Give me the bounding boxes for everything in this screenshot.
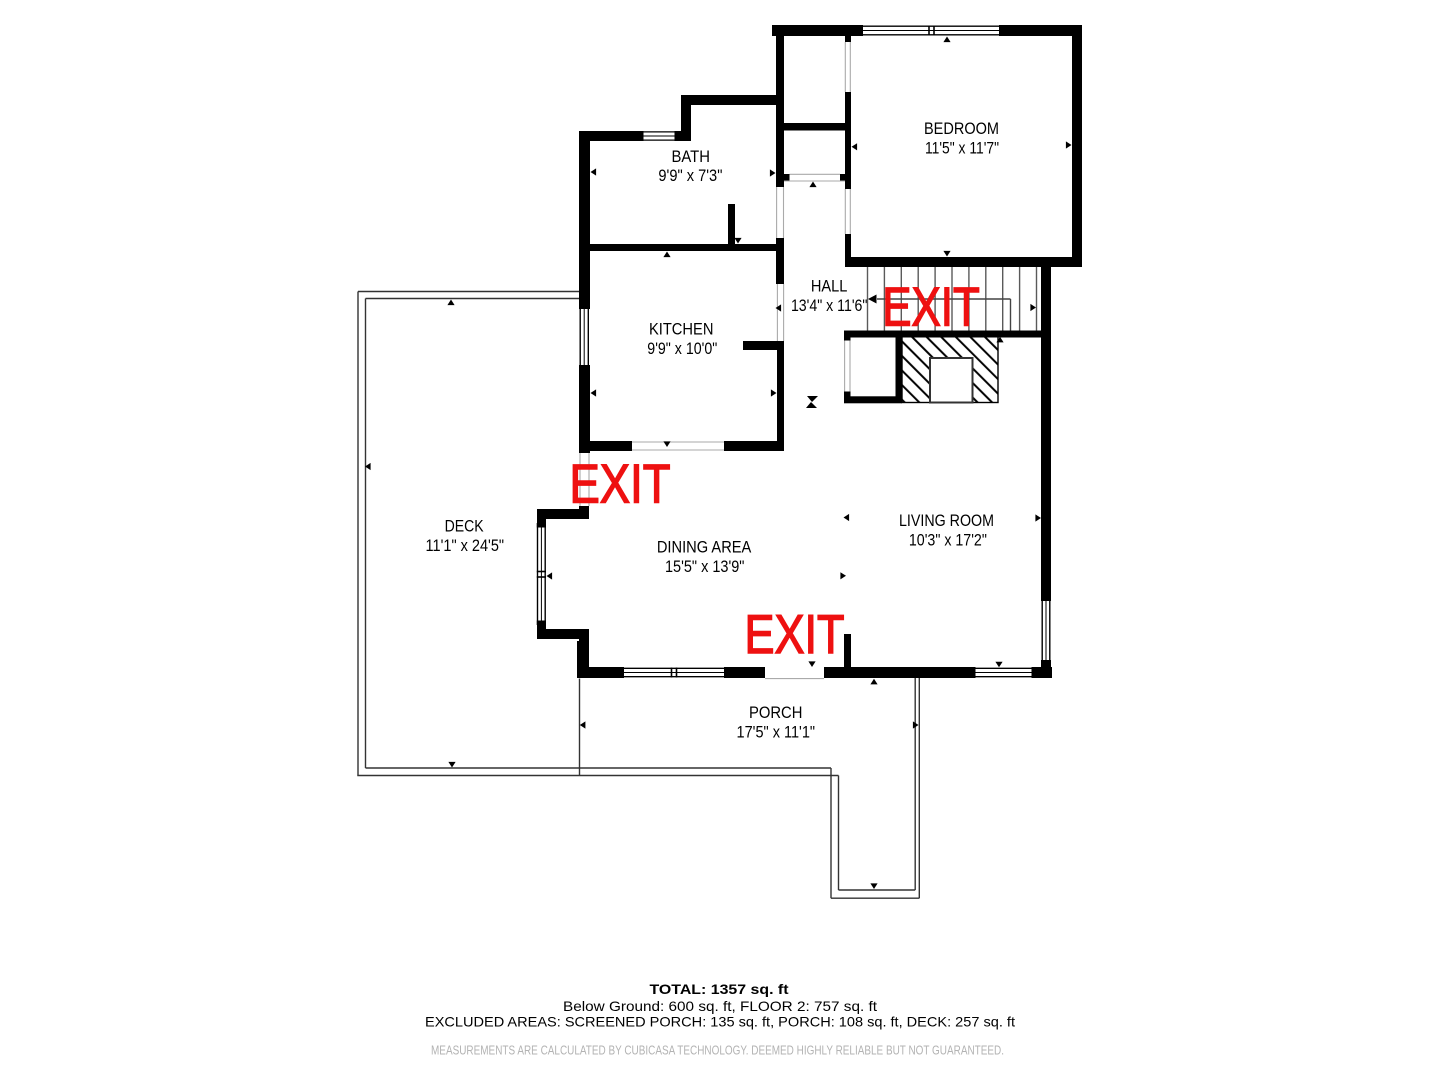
svg-text:13'4" x 11'6": 13'4" x 11'6" [791, 296, 868, 315]
svg-text:KITCHEN: KITCHEN [649, 319, 714, 338]
svg-text:MEASUREMENTS ARE CALCULATED BY: MEASUREMENTS ARE CALCULATED BY CUBICASA … [431, 1044, 1004, 1058]
svg-text:15'5" x 13'9": 15'5" x 13'9" [665, 557, 745, 576]
svg-text:9'9" x 10'0": 9'9" x 10'0" [647, 339, 717, 358]
svg-text:BEDROOM: BEDROOM [924, 119, 999, 138]
svg-text:EXCLUDED AREAS: SCREENED PORCH: EXCLUDED AREAS: SCREENED PORCH: 135 sq. … [425, 1015, 1015, 1030]
svg-text:17'5" x 11'1": 17'5" x 11'1" [737, 723, 816, 742]
svg-text:11'5" x 11'7": 11'5" x 11'7" [925, 139, 999, 158]
svg-text:EXIT: EXIT [745, 603, 845, 665]
svg-text:EXIT: EXIT [570, 453, 671, 515]
svg-text:11'1" x 24'5": 11'1" x 24'5" [426, 536, 505, 555]
svg-text:TOTAL: 1357 sq. ft: TOTAL: 1357 sq. ft [650, 982, 789, 997]
svg-text:Below Ground: 600 sq. ft, FLOO: Below Ground: 600 sq. ft, FLOOR 2: 757 s… [563, 999, 877, 1014]
svg-text:9'9" x 7'3": 9'9" x 7'3" [658, 166, 722, 185]
svg-text:LIVING ROOM: LIVING ROOM [899, 511, 994, 530]
svg-text:HALL: HALL [811, 277, 848, 296]
svg-text:PORCH: PORCH [749, 703, 803, 722]
svg-text:DINING AREA: DINING AREA [657, 538, 752, 557]
svg-text:10'3" x 17'2": 10'3" x 17'2" [909, 531, 987, 550]
svg-text:DECK: DECK [445, 516, 485, 535]
svg-text:BATH: BATH [671, 147, 710, 166]
svg-text:EXIT: EXIT [882, 276, 980, 338]
